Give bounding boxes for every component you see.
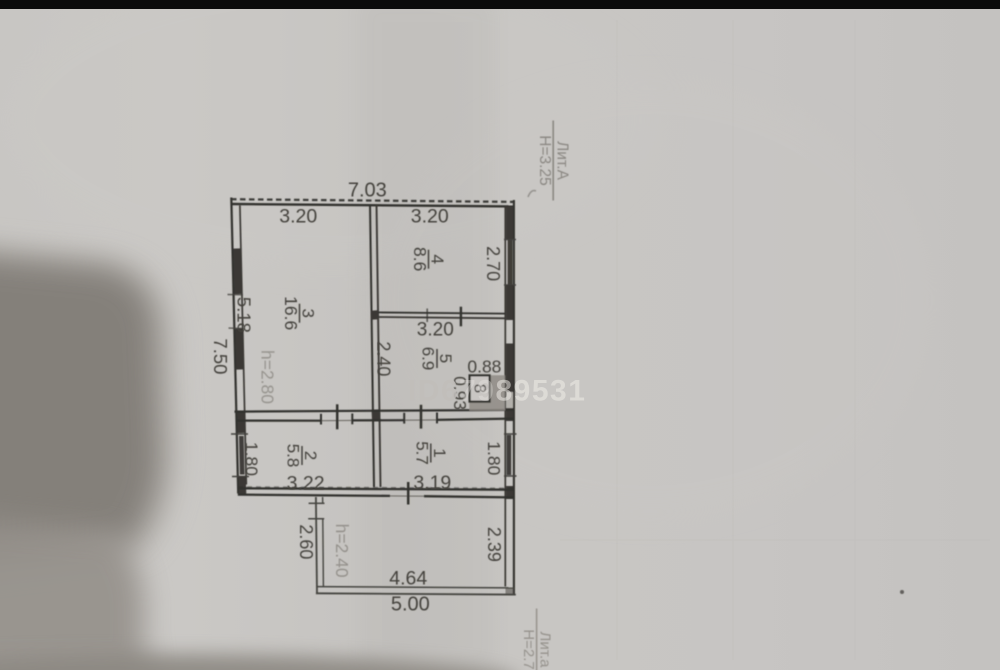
svg-text:1.80: 1.80 (242, 442, 262, 476)
svg-text:Н=2.7: Н=2.7 (520, 629, 537, 669)
svg-text:3.22: 3.22 (287, 472, 325, 494)
svg-text:79: 79 (459, 375, 495, 408)
svg-text:6.9: 6.9 (419, 347, 438, 371)
svg-text:1.80: 1.80 (484, 441, 504, 475)
svg-text:2.60: 2.60 (296, 524, 316, 559)
svg-text:h=2.80: h=2.80 (258, 350, 278, 404)
svg-text:7.50: 7.50 (210, 338, 231, 374)
svg-text:16.6: 16.6 (281, 296, 301, 330)
svg-text:2: 2 (301, 451, 320, 460)
svg-text:5: 5 (436, 354, 455, 363)
svg-text:2.40: 2.40 (374, 341, 394, 376)
svg-text:5.7: 5.7 (412, 441, 431, 465)
svg-text:Н=3.25: Н=3.25 (536, 135, 553, 185)
svg-text:ID6: ID6 (408, 375, 459, 408)
svg-text:8.6: 8.6 (410, 247, 430, 271)
svg-text:3.20: 3.20 (411, 206, 449, 228)
svg-text:89531: 89531 (496, 375, 587, 408)
svg-text:Лит.А: Лит.А (554, 141, 571, 181)
svg-text:3.19: 3.19 (413, 472, 451, 494)
svg-text:h=2.40: h=2.40 (332, 524, 352, 578)
svg-text:2.70: 2.70 (483, 246, 503, 281)
svg-text:1: 1 (430, 448, 449, 457)
svg-text:5.00: 5.00 (391, 594, 430, 616)
svg-text:3.20: 3.20 (417, 320, 454, 341)
svg-text:Лит.а: Лит.а (537, 632, 554, 669)
svg-text:3.20: 3.20 (279, 205, 317, 227)
svg-text:5.18: 5.18 (234, 297, 255, 333)
svg-text:2.39: 2.39 (484, 527, 504, 562)
svg-text:5.8: 5.8 (284, 444, 303, 468)
svg-text:7.03: 7.03 (348, 180, 387, 202)
svg-text:4.64: 4.64 (389, 567, 427, 589)
